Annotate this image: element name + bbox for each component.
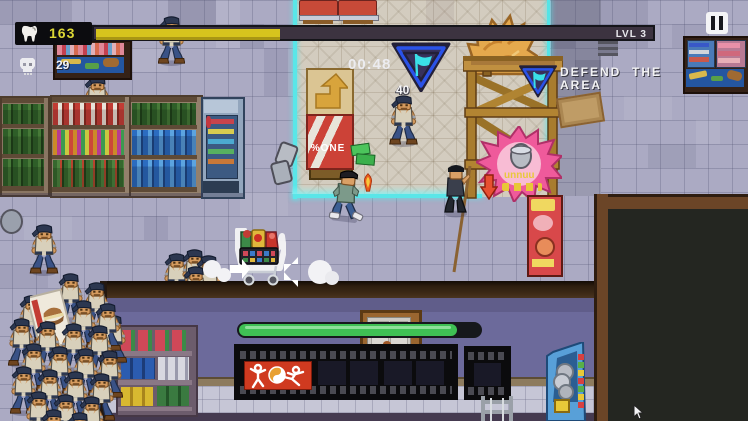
svg-text:unnuu: unnuu [504,170,535,181]
